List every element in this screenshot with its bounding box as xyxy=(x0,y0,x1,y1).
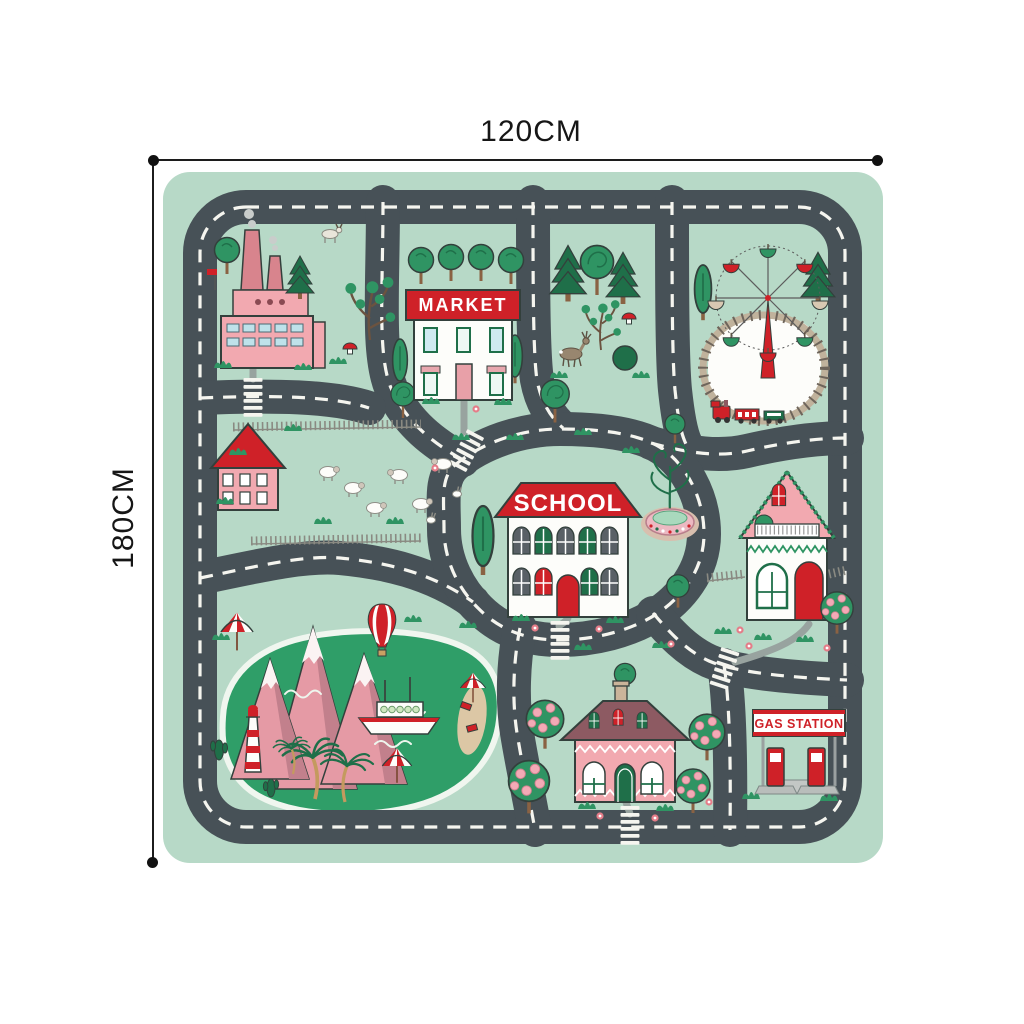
market-door xyxy=(456,364,472,400)
gas-station-sign-text: GAS STATION xyxy=(754,717,843,731)
school-window xyxy=(557,527,574,554)
attic-window xyxy=(637,712,647,728)
bush-icon xyxy=(613,346,637,370)
width-dimension-line xyxy=(155,159,877,161)
road-forest-ferris xyxy=(672,202,686,444)
dimension-bottom-dot xyxy=(147,857,158,868)
product-image: 120CM 180CM xyxy=(0,0,1024,1024)
attic-window xyxy=(613,709,623,725)
dimension-corner-dot xyxy=(148,155,159,166)
flower-icon xyxy=(431,464,438,471)
school-sign-text: SCHOOL xyxy=(514,490,623,517)
width-dimension-label: 120CM xyxy=(431,115,631,149)
school-window xyxy=(601,568,618,595)
school-window xyxy=(513,527,530,554)
school-window xyxy=(535,568,552,595)
play-mat-art: MARKET xyxy=(163,172,883,863)
school-door xyxy=(557,575,579,617)
flower-icon xyxy=(823,644,830,651)
flower-icon xyxy=(736,626,743,633)
cottage-door xyxy=(795,562,823,620)
attic-window xyxy=(589,712,599,728)
height-dimension-label: 180CM xyxy=(107,418,139,618)
school-window xyxy=(601,527,618,554)
dimension-right-dot xyxy=(872,155,883,166)
height-dimension-line xyxy=(152,160,154,862)
play-mat-rug: MARKET xyxy=(163,172,883,863)
school-window xyxy=(581,568,598,595)
school-window xyxy=(579,527,596,554)
flower-icon xyxy=(595,625,602,632)
flower-icon xyxy=(596,812,603,819)
school-window xyxy=(513,568,530,595)
school-window xyxy=(535,527,552,554)
flower-icon xyxy=(667,640,674,647)
flower-icon xyxy=(472,405,479,412)
flower-icon xyxy=(745,642,752,649)
flower-icon xyxy=(705,798,712,805)
flower-icon xyxy=(531,624,538,631)
market-sign-text: MARKET xyxy=(419,295,508,315)
flower-icon xyxy=(651,814,658,821)
gable-window xyxy=(772,484,786,506)
